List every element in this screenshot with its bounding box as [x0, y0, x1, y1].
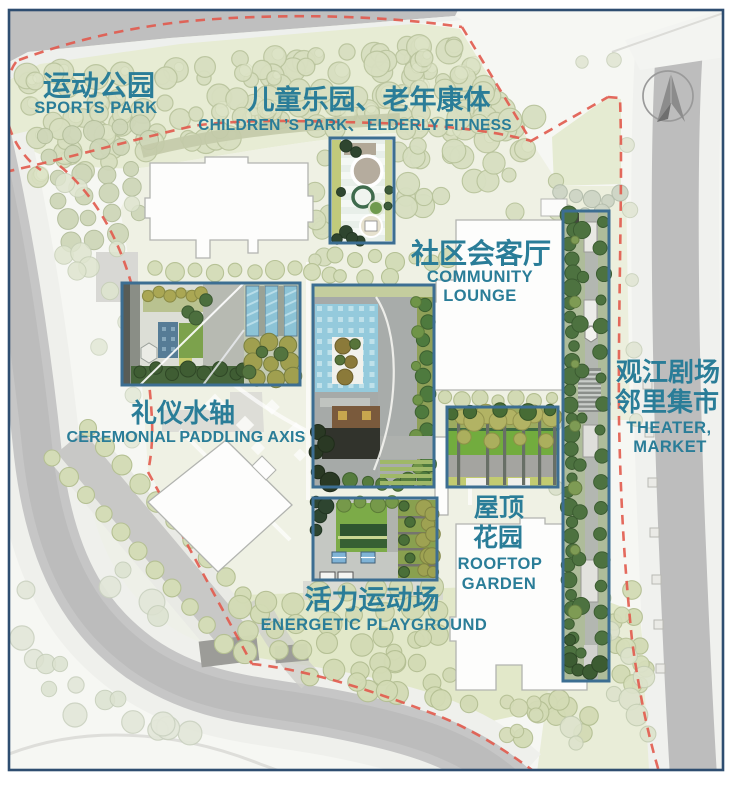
svg-text:ENERGETIC PLAYGROUND: ENERGETIC PLAYGROUND [261, 616, 488, 634]
svg-text:SPORTS PARK: SPORTS PARK [34, 99, 157, 117]
svg-text:观江剧场: 观江剧场 [616, 357, 720, 387]
svg-text:GARDEN: GARDEN [462, 575, 537, 593]
svg-text:活力运动场: 活力运动场 [305, 585, 440, 615]
svg-text:CEREMONIAL PADDLING AXIS: CEREMONIAL PADDLING AXIS [66, 429, 305, 446]
svg-text:CHILDREN ’S PARK、 ELDERLY FITN: CHILDREN ’S PARK、 ELDERLY FITNESS [198, 117, 512, 134]
svg-text:COMMUNITY: COMMUNITY [427, 268, 533, 286]
svg-text:社区会客厅: 社区会客厅 [411, 237, 551, 269]
svg-text:LOUNGE: LOUNGE [443, 287, 517, 305]
svg-text:MARKET: MARKET [633, 438, 707, 456]
svg-text:屋顶: 屋顶 [474, 494, 524, 522]
svg-text:邻里集市: 邻里集市 [615, 387, 719, 417]
svg-text:儿童乐园、老年康体: 儿童乐园、老年康体 [248, 84, 492, 115]
svg-text:THEATER,: THEATER, [626, 419, 711, 437]
svg-text:礼仪水轴: 礼仪水轴 [131, 398, 235, 428]
svg-text:花园: 花园 [473, 524, 523, 552]
svg-text:运动公园: 运动公园 [43, 70, 155, 101]
svg-text:ROOFTOP: ROOFTOP [458, 555, 543, 573]
